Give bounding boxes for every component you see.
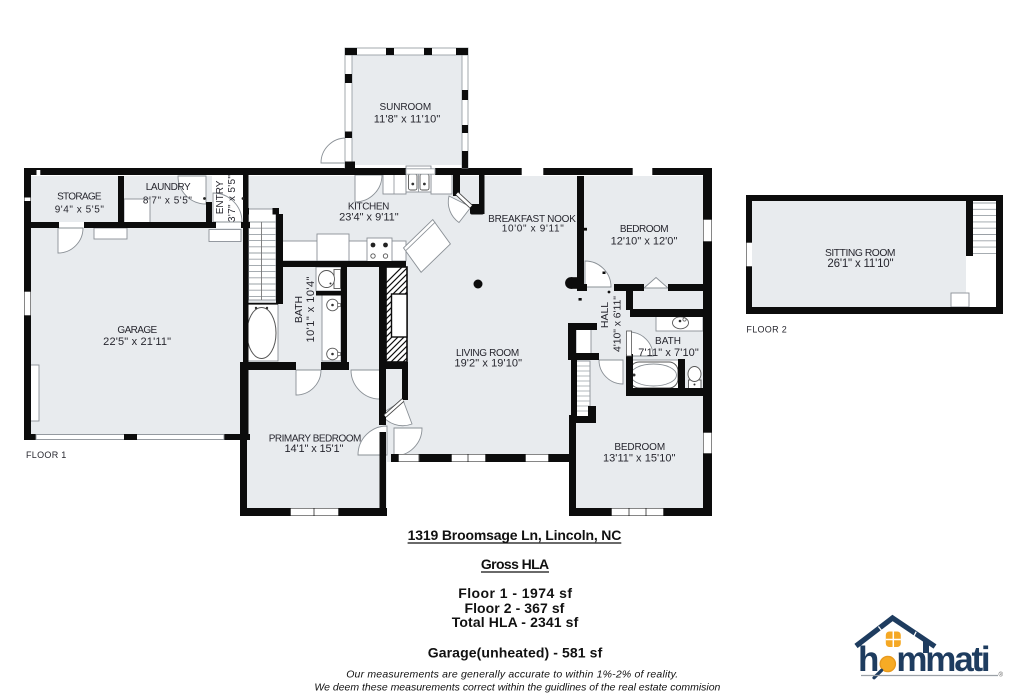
svg-text:14'1" x 15'1": 14'1" x 15'1" [285, 443, 344, 455]
svg-text:19'2" x 19'10": 19'2" x 19'10" [454, 358, 522, 370]
svg-text:12'10" x 12'0": 12'10" x 12'0" [611, 236, 678, 248]
svg-text:GARAGE: GARAGE [117, 325, 157, 336]
svg-text:13'11" x 15'10": 13'11" x 15'10" [603, 453, 676, 465]
svg-text:10'0" x 9'11": 10'0" x 9'11" [502, 224, 564, 235]
svg-text:Gross HLA: Gross HLA [481, 556, 549, 572]
svg-text:9'4" x 5'5": 9'4" x 5'5" [55, 205, 105, 216]
svg-text:10'1" x 10'4": 10'1" x 10'4" [305, 276, 317, 342]
svg-text:8'7" x 5'5": 8'7" x 5'5" [143, 196, 192, 207]
svg-text:FLOOR 2: FLOOR 2 [746, 325, 787, 335]
svg-text:Total HLA - 2341 sf: Total HLA - 2341 sf [452, 614, 579, 630]
svg-text:®: ® [999, 672, 1004, 679]
svg-text:ENTRY: ENTRY [215, 180, 226, 214]
svg-text:26'1" x 11'10": 26'1" x 11'10" [827, 258, 893, 270]
svg-text:BEDROOM: BEDROOM [614, 442, 665, 453]
svg-text:7'11" x 7'10": 7'11" x 7'10" [638, 347, 699, 359]
svg-text:23'4" x 9'11": 23'4" x 9'11" [339, 212, 399, 224]
svg-text:4'10" x 6'11": 4'10" x 6'11" [612, 296, 624, 352]
svg-text:3'7" x 5'5": 3'7" x 5'5" [227, 175, 238, 222]
svg-text:SUNROOM: SUNROOM [380, 102, 432, 113]
svg-text:LAUNDRY: LAUNDRY [146, 182, 191, 193]
svg-text:22'5" x 21'11": 22'5" x 21'11" [103, 336, 171, 348]
svg-text:We deem these measurements cor: We deem these measurements correct withi… [314, 682, 720, 694]
svg-text:11'8" x 11'10": 11'8" x 11'10" [374, 114, 441, 126]
svg-text:HALL: HALL [599, 302, 611, 328]
svg-text:BEDROOM: BEDROOM [620, 224, 668, 235]
svg-text:Garage(unheated) - 581 sf: Garage(unheated) - 581 sf [428, 645, 603, 661]
svg-text:BATH: BATH [655, 336, 681, 347]
svg-text:FLOOR 1: FLOOR 1 [26, 450, 67, 460]
svg-text:Our measurements are generally: Our measurements are generally accurate … [346, 669, 678, 681]
svg-text:Floor 1 - 1974 sf: Floor 1 - 1974 sf [458, 585, 572, 601]
svg-text:STORAGE: STORAGE [57, 192, 102, 203]
svg-text:BATH: BATH [293, 296, 305, 323]
svg-text:1319 Broomsage Ln, Lincoln, NC: 1319 Broomsage Ln, Lincoln, NC [408, 527, 622, 543]
